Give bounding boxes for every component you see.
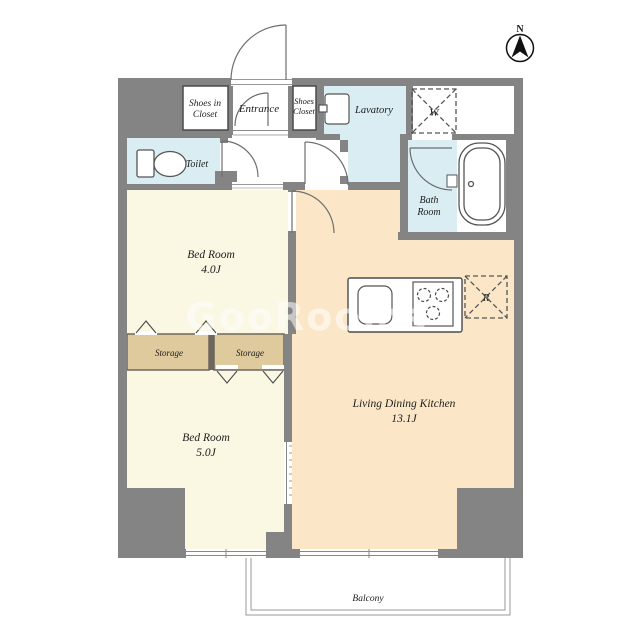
label-balcony: Balcony — [352, 594, 384, 604]
label-bedroom5: Bed Room — [182, 432, 230, 444]
floor-plan-canvas: N GooRooms Shoes in Closet Entrance Shoe… — [0, 0, 640, 640]
label-shoes-closet-2: Closet — [293, 106, 315, 116]
label-entrance: Entrance — [238, 103, 279, 115]
label-bath-2: Room — [416, 207, 440, 218]
floor-plan-page: N GooRooms Shoes in Closet Entrance Shoe… — [0, 0, 640, 640]
label-shoes-in-closet-2: Closet — [193, 110, 218, 120]
north-arrow-icon: N — [507, 24, 534, 62]
label-ldk: Living Dining Kitchen — [352, 398, 456, 410]
label-ldk-size: 13.1J — [391, 413, 417, 425]
compass-label: N — [516, 24, 524, 35]
label-bath: Bath — [420, 195, 439, 206]
label-bedroom5-size: 5.0J — [196, 447, 216, 459]
wall-mass-bottom-right — [457, 488, 514, 550]
label-fridge: R — [482, 293, 489, 304]
wall-mass-bottom-left — [127, 488, 185, 550]
front-door-arc — [231, 25, 286, 80]
label-storage-right: Storage — [236, 348, 264, 358]
label-storage-left: Storage — [155, 348, 183, 358]
label-bedroom4: Bed Room — [187, 249, 235, 261]
label-bedroom4-size: 4.0J — [201, 264, 221, 276]
label-shoes-closet: Shoes — [294, 96, 315, 106]
watermark: GooRooms — [185, 295, 428, 339]
window-ldk — [300, 549, 438, 558]
storage-divider — [209, 334, 214, 370]
window-bedroom5 — [186, 549, 266, 558]
label-toilet: Toilet — [186, 159, 209, 170]
label-lavatory: Lavatory — [354, 105, 393, 116]
label-shoes-in-closet: Shoes in — [189, 99, 221, 109]
toilet-icon — [137, 150, 186, 177]
label-washer: W — [429, 107, 439, 119]
balcony-outline — [246, 558, 510, 615]
